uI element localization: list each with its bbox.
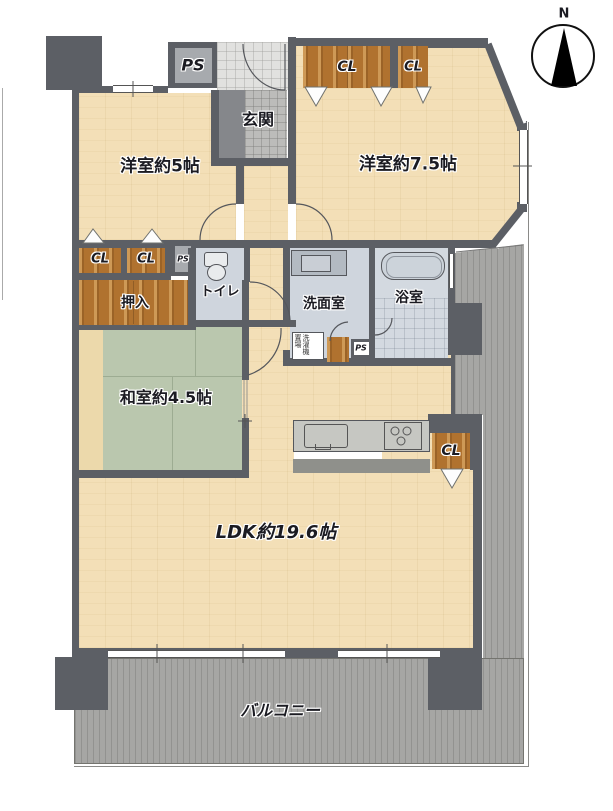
laundry-space-label: 洗濯機置場 [293,333,311,359]
wall-cl-divider [390,46,398,88]
pillar-top-left [46,36,102,90]
kitchen-cl-surround-right [470,433,482,470]
laundry-space: 洗濯機置場 [292,332,324,360]
wall-washroom-left [283,248,290,327]
genkan-tile-upper [217,42,293,90]
pillar-bottom-left [55,657,108,710]
floor-plan: 洗濯機置場 N 洋室約5帖 洋室約7.5帖 和室約4.5帖 LDK約19.6帖 … [0,0,613,811]
pillar-bottom-right [428,655,482,710]
wall-below-genkan [211,158,295,166]
wall-genkan-right [288,37,296,204]
label-toilet: トイレ [200,281,239,300]
kitchen-counter-front [294,452,382,459]
label-bathroom: 浴室 [395,287,423,307]
vanity-sink [301,255,331,272]
kitchen-cl-surround-top [428,414,482,433]
wall-washitsu-bottom [72,470,249,478]
plan-frame-right [528,122,529,766]
wall-mid-band [72,240,498,248]
bathroom-tile-grid [374,298,448,358]
label-cl1: CL [337,59,356,75]
window-bay [519,130,528,204]
toilet-bowl [207,264,226,281]
wall-left [72,85,79,657]
wall-cl3-cl4 [121,245,127,273]
wall-washitsu-right-lower [242,418,249,470]
label-washitsu: 和室約4.5帖 [120,384,212,408]
label-balcony: バルコニー [240,697,320,721]
label-cl5: CL [441,443,460,459]
wall-oshiire-toilet [188,248,196,330]
wall-top-west75 [296,38,428,46]
label-genkan: 玄関 [242,106,274,130]
wall-toilet-right-upper [244,246,250,282]
pillar-bath-right [450,303,482,355]
label-cl4: CL [137,252,155,267]
wall-hall-left [236,166,244,204]
window-west5-top [113,85,153,93]
corridor-edge-left [2,88,3,300]
kitchen-sink-tab [315,444,331,450]
label-cl2: CL [404,60,422,75]
wall-under-oshiire [79,325,192,330]
wall-right-of-cl2 [428,38,488,48]
label-west5: 洋室約5帖 [120,152,200,177]
compass-north-label: N [559,7,570,22]
label-ps-3: PS [355,344,367,353]
label-washroom: 洗面室 [303,293,345,313]
label-ldk: LDK約19.6帖 [216,518,337,544]
wall-ldk-right [473,466,482,655]
hall-cabinet [327,337,349,362]
wall-balcony-edge-thin [451,355,455,415]
kitchen-stove [384,422,422,450]
wall-west5-right [211,90,219,158]
wall-under-cl-row [79,273,171,280]
wall-washroom-left-stub [283,350,290,358]
plan-frame-bottom [74,766,529,767]
window-bath [449,254,454,288]
kitchen-base [293,459,430,473]
label-west75: 洋室約7.5帖 [359,150,457,175]
wall-washitsu-right-upper [242,280,249,380]
window-ldk-balcony-2 [338,650,440,658]
label-ps-top: PS [181,56,204,75]
label-cl3: CL [91,252,109,267]
label-oshiire: 押入 [121,292,149,312]
label-ps-2: PS [177,255,189,264]
bathtub-inner [386,256,442,278]
window-ldk-balcony-1 [108,650,285,658]
